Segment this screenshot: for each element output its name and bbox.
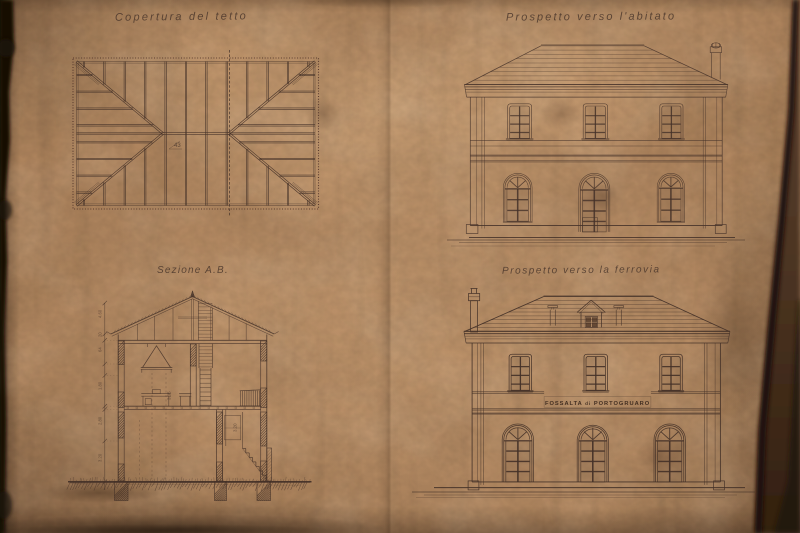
svg-text:1.80: 1.80 — [98, 381, 103, 390]
svg-text:3.20: 3.20 — [98, 453, 103, 462]
svg-text:2.80: 2.80 — [98, 416, 103, 425]
svg-text:20: 20 — [98, 332, 103, 337]
svg-text:4.60: 4.60 — [98, 309, 103, 318]
svg-text:FOSSALTA di PORTOGRUARO: FOSSALTA di PORTOGRUARO — [545, 401, 650, 407]
svg-text:3.35: 3.35 — [167, 391, 172, 400]
svg-text:64: 64 — [98, 347, 103, 352]
svg-text:3.20: 3.20 — [233, 423, 238, 432]
svg-text:43: 43 — [174, 143, 181, 149]
